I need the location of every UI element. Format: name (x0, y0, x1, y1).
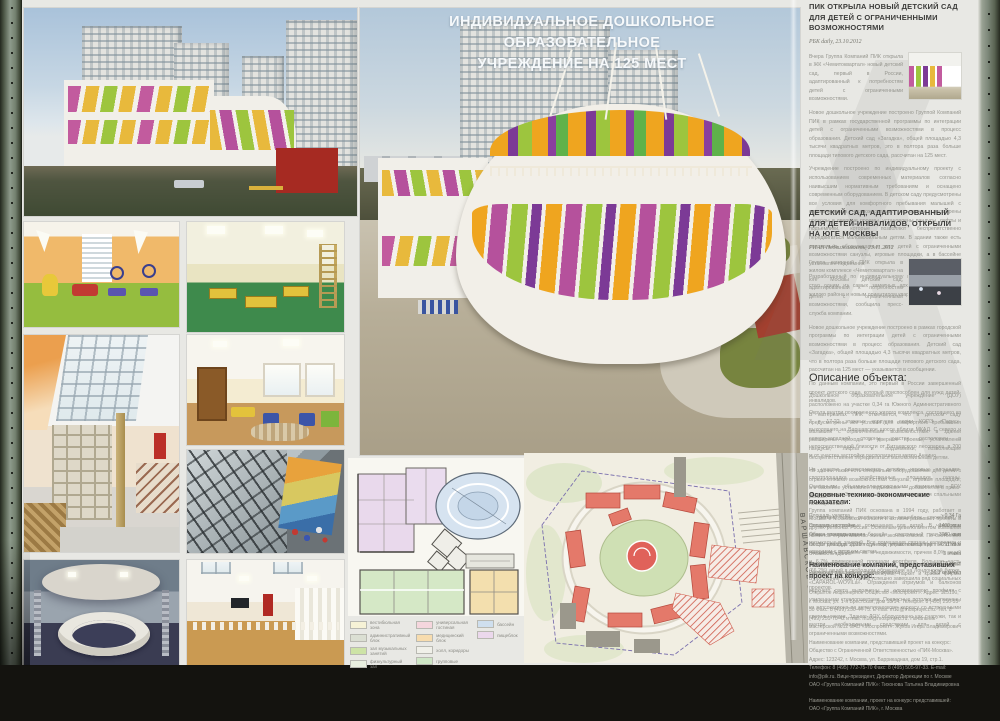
legend-label: административный блок (370, 633, 410, 643)
indicator-value: 1400 кв.м (939, 522, 961, 532)
indicator-value: ~ 0,34 Га (940, 512, 961, 522)
skylight (201, 562, 231, 574)
ceiling-light (265, 226, 283, 234)
article-1-source: РБК daily, 23.10.2012 (809, 39, 961, 45)
indicator-row: Общая площадь здания с учетом летних пом… (809, 541, 961, 551)
ceiling-light (207, 226, 225, 234)
company-block: Открытое Акционерное Общество «Моспроект… (809, 589, 961, 632)
indicator-value: 3980 кв.м (939, 531, 961, 541)
photo-music-hall (187, 560, 344, 665)
red-fence (276, 148, 338, 193)
site-plan-drawing: ВАРШАВСКОЕ ШОССЕ (524, 453, 808, 663)
presentation-board: ИНДИВИДУАЛЬНОЕ ДОШКОЛЬНОЕ ОБРАЗОВАТЕЛЬНО… (22, 0, 978, 665)
plan-legend: вестибюльная зона административный блок … (350, 620, 532, 662)
legend-item: вестибюльная зона (350, 620, 410, 630)
legend-label: универсальная гостиная (436, 620, 471, 630)
facade-panels (68, 120, 210, 144)
legend-item: физкультурный зал (350, 659, 410, 669)
company-block: Наименование компании, представившей про… (809, 639, 961, 690)
photo-gym-equipment (24, 222, 179, 327)
indicator-label: Этажность здания (809, 550, 851, 560)
bench (174, 180, 204, 188)
board-title-line1: ИНДИВИДУАЛЬНОЕ ДОШКОЛЬНОЕ ОБРАЗОВАТЕЛЬНО… (372, 12, 792, 54)
indicator-label: Площадь застройки (809, 522, 855, 532)
legend-label: бассейн (497, 622, 514, 627)
window-grid (82, 234, 112, 282)
gym-mat (245, 296, 277, 308)
column (116, 413, 125, 531)
legend-item: административный блок (350, 633, 410, 643)
legend-item: групповые (416, 657, 471, 665)
floor-plan (348, 458, 532, 616)
legend-item: зал музыкальных занятий (350, 646, 410, 656)
chair-row (193, 622, 339, 630)
indicator-value: 4211 кв.м (939, 541, 961, 551)
legend-item: холл, коридоры (416, 646, 471, 654)
exercise-bike (42, 274, 58, 296)
description-paragraph: Дошкольное образовательное учреждение (Д… (809, 392, 961, 461)
facade-panels (68, 86, 210, 112)
ceiling-light (239, 576, 249, 581)
tv-screen (231, 598, 249, 608)
legend-label: зал музыкальных занятий (370, 646, 410, 656)
hoop-stand (110, 266, 124, 280)
facade-panels (210, 110, 294, 150)
floor-plan-drawing (348, 458, 532, 616)
legend-item: универсальная гостиная (416, 620, 471, 630)
article-paragraph: Новое дошкольное учреждение построено Гр… (809, 109, 961, 160)
article-2-thumbnail (909, 259, 961, 305)
ceiling-light (307, 230, 323, 237)
description-heading: Описание объекта: (809, 372, 961, 384)
rug (251, 423, 309, 441)
facade-panels (382, 170, 484, 196)
article-paragraph: Новое дошкольное учреждение построено в … (809, 324, 961, 375)
poster-fold-glare (790, 0, 797, 640)
indicator-label: Общая площадь здания с учетом летних пом… (809, 541, 932, 551)
green-cabinet (321, 411, 339, 427)
legend-swatch (416, 634, 433, 642)
legend-swatch (350, 634, 367, 642)
stairs (136, 463, 179, 513)
ceiling-light (120, 572, 128, 577)
roof-terrace-railing (490, 166, 752, 176)
bench (249, 186, 283, 190)
window (307, 365, 333, 395)
photo-atrium-mural (187, 450, 344, 553)
legend-swatch (416, 621, 433, 629)
glass-roof-grid (187, 450, 287, 553)
legend-label: групповые (436, 659, 458, 664)
indicator-value: 3 этажа (943, 550, 961, 560)
legend-column: универсальная гостиная медицинский блок … (416, 620, 471, 662)
legend-label: пищеблок (497, 633, 518, 638)
red-door (263, 594, 273, 616)
stand-frame-right (978, 0, 1000, 665)
stepper (140, 288, 158, 296)
indicator-row: Этажность здания3 этажа (809, 550, 961, 560)
legend-label: медицинский блок (436, 633, 471, 643)
press-column: ПИК ОТКРЫЛА НОВЫЙ ДЕТСКИЙ САД ДЛЯ ДЕТЕЙ … (805, 0, 969, 665)
gym-mat (209, 288, 237, 299)
gym-mat (283, 286, 309, 297)
skylight (56, 335, 148, 421)
ceiling-light (68, 572, 76, 577)
indicator-label: Общая площадь здания (809, 531, 865, 541)
window (265, 365, 299, 395)
legend-swatch (477, 631, 494, 639)
window-shape (132, 230, 148, 254)
legend-column: вестибюльная зона административный блок … (350, 620, 410, 662)
hoop-stand (142, 264, 156, 278)
legend-label: холл, коридоры (436, 648, 469, 653)
board-title-line2: УЧРЕЖДЕНИЕ НА 125 МЕСТ (372, 54, 792, 75)
legend-swatch (350, 660, 367, 668)
column (34, 590, 41, 656)
ceiling-light (213, 341, 227, 347)
legend-item: медицинский блок (416, 633, 471, 643)
legend-swatch (477, 620, 494, 628)
companies-section: Наименование компаний, представивших про… (809, 560, 961, 721)
legend-swatch (350, 621, 367, 629)
stepper (108, 288, 126, 296)
wall-ladder (319, 244, 337, 308)
board-title: ИНДИВИДУАЛЬНОЕ ДОШКОЛЬНОЕ ОБРАЗОВАТЕЛЬНО… (372, 12, 792, 75)
indicator-row: Площадь застройки1400 кв.м (809, 522, 961, 532)
ceiling-ring (42, 564, 160, 600)
curtains (295, 588, 344, 640)
article-2-heading: ДЕТСКИЙ САД, АДАПТИРОВАННЫЙ ДЛЯ ДЕТЕЙ-ИН… (809, 208, 961, 240)
company-block: Наименование компании, проект на конкурс… (809, 697, 961, 714)
floor (60, 527, 179, 552)
indicator-label: Площадь участка (809, 512, 850, 522)
photo-playroom (187, 335, 344, 445)
photo-aerial-complex (360, 8, 800, 455)
indicators-heading: Основные технико-экономические показател… (809, 492, 961, 506)
window-shape (36, 230, 50, 252)
photo-atrium-corridor (24, 335, 179, 552)
article-1-thumbnail (909, 53, 961, 99)
ceiling-light (307, 576, 317, 581)
balloons (287, 522, 331, 548)
companies-heading: Наименование компаний, представивших про… (809, 560, 961, 582)
spiral-wall-inner (72, 620, 136, 648)
wood-door (197, 367, 227, 421)
site-plan: ВАРШАВСКОЕ ШОССЕ (524, 453, 808, 663)
legend-swatch (416, 646, 433, 654)
legend-swatch (416, 657, 433, 665)
photo-round-hall (24, 560, 179, 665)
legend-label: вестибюльная зона (370, 620, 410, 630)
photo-gym-hall (187, 222, 344, 332)
red-locker (154, 433, 166, 459)
photo-kindergarten-playground (24, 8, 357, 216)
indicator-row: Общая площадь здания3980 кв.м (809, 531, 961, 541)
red-mat (72, 284, 98, 296)
entrance-canopy (418, 300, 458, 314)
frame-shadow (0, 540, 30, 665)
column (162, 590, 169, 656)
ceiling-light (283, 339, 299, 346)
skylight (273, 562, 303, 574)
article-1-heading: ПИК ОТКРЫЛА НОВЫЙ ДЕТСКИЙ САД ДЛЯ ДЕТЕЙ … (809, 2, 961, 34)
article-2-source: РИАН Недвижимость, 23.11.2012 (809, 245, 961, 251)
legend-label: физкультурный зал (370, 659, 410, 669)
legend-swatch (350, 647, 367, 655)
indicator-row: Площадь участка~ 0,34 Га (809, 512, 961, 522)
kids-table (231, 407, 255, 417)
